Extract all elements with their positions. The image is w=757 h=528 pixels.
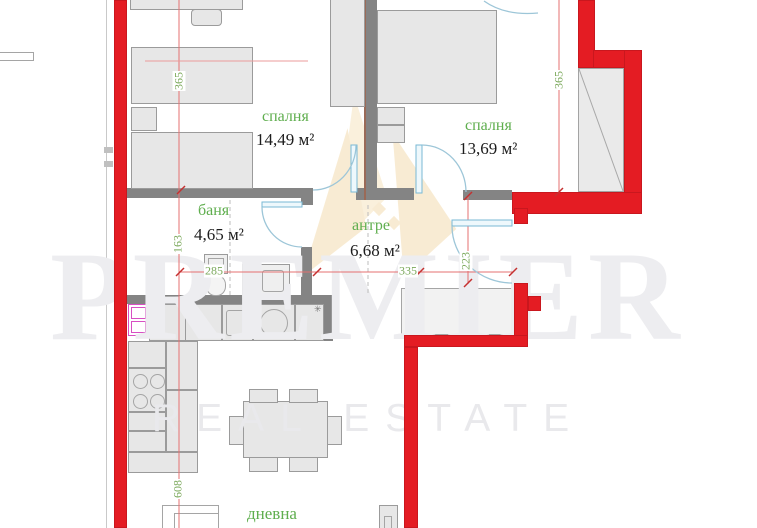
room-label-hall: антре: [352, 217, 390, 235]
floor-plan: ✳ PREMIER REAL ESTATE: [0, 0, 757, 528]
room-area-bedroom1: 14,49 м²: [256, 130, 314, 150]
room-label-bedroom2: спалня: [465, 117, 512, 135]
room-label-living: дневна: [247, 504, 297, 524]
dim-hall-depth: 223: [460, 251, 473, 271]
dim-living-depth: 608: [172, 479, 185, 499]
room-area-bedroom2: 13,69 м²: [459, 139, 517, 159]
dim-bedroom1-depth: 365: [173, 71, 186, 91]
dim-bath-width: 285: [204, 265, 224, 278]
room-label-bath: баня: [198, 202, 229, 220]
dim-bath-depth: 163: [172, 234, 185, 254]
room-area-bath: 4,65 м²: [194, 225, 244, 245]
dim-hall-width: 335: [398, 265, 418, 278]
labels-layer: спалня 14,49 м² спалня 13,69 м² баня 4,6…: [0, 0, 757, 528]
dim-bedroom2-depth: 365: [553, 70, 566, 90]
room-label-bedroom1: спалня: [262, 108, 309, 126]
room-area-hall: 6,68 м²: [350, 241, 400, 261]
